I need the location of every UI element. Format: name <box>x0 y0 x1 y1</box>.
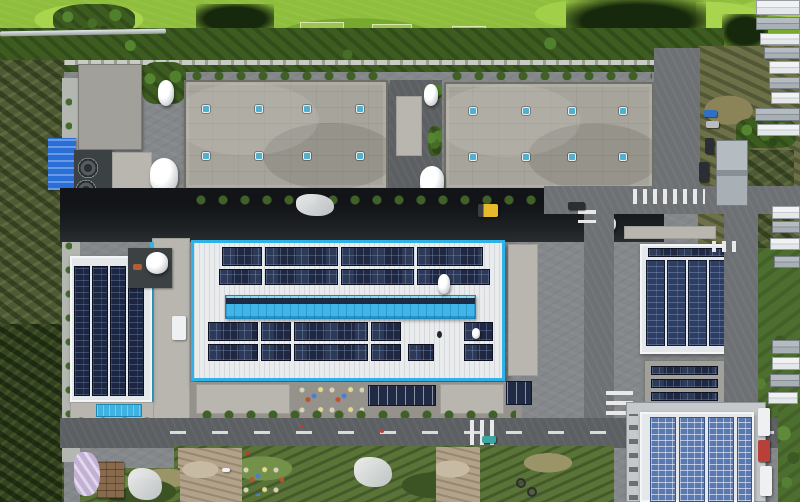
white-tarp <box>296 194 334 216</box>
solar-array-segment <box>417 247 483 266</box>
car <box>482 436 496 443</box>
skylight <box>619 107 627 115</box>
solar-array-column <box>688 260 707 346</box>
solar-array-column <box>708 417 734 502</box>
solar-array-segment <box>294 322 368 341</box>
solar-array-segment <box>219 269 262 285</box>
shed <box>757 124 800 136</box>
debris-cluster <box>240 464 284 496</box>
skylight <box>619 153 627 161</box>
excavator <box>478 204 498 217</box>
shed <box>772 221 800 233</box>
alley-pad <box>396 96 422 156</box>
car <box>706 121 719 128</box>
shed <box>755 108 800 121</box>
shed <box>764 47 800 59</box>
skylight <box>356 152 364 160</box>
white-tank <box>146 252 168 274</box>
solar-array-segment <box>208 322 258 341</box>
zebra-crossing <box>633 189 705 204</box>
white-tank <box>158 80 174 106</box>
solar-array-segment <box>341 247 414 266</box>
solar-array-column <box>667 260 686 346</box>
monitor-roof-blue <box>225 295 476 319</box>
shed <box>772 340 800 354</box>
solar-array-segment <box>417 269 490 285</box>
solar-array-column <box>92 266 108 396</box>
shed <box>769 61 800 74</box>
car <box>704 110 717 117</box>
trailer <box>758 408 770 436</box>
gray-tarp <box>128 468 162 500</box>
solar-array-column <box>74 266 90 396</box>
shed <box>771 92 800 104</box>
car <box>705 138 714 154</box>
shed <box>756 0 800 15</box>
skylight <box>469 107 477 115</box>
trailer <box>760 466 772 496</box>
skylight <box>303 105 311 113</box>
dirt-patch <box>178 448 242 502</box>
shed <box>772 206 800 219</box>
hedge-row <box>446 70 652 80</box>
solar-array-segment <box>341 269 414 285</box>
solar-array-segment <box>651 366 718 375</box>
solar-array-column <box>646 260 665 346</box>
equipment-crate <box>133 264 142 270</box>
solar-array-segment <box>265 269 338 285</box>
skylight <box>568 107 576 115</box>
solar-array-segment <box>294 344 368 361</box>
skylight <box>568 153 576 161</box>
roof-chimney <box>438 274 450 294</box>
ground-solar-array <box>368 385 436 406</box>
solar-array-segment <box>651 379 718 388</box>
solar-array-segment <box>261 344 291 361</box>
tire <box>516 478 526 488</box>
shed <box>770 238 800 250</box>
person-dot <box>380 429 384 433</box>
zebra-crossing <box>578 210 596 223</box>
cooling-fan <box>78 158 98 178</box>
solar-array-segment <box>208 344 258 361</box>
solar-array-column <box>110 266 126 396</box>
long-shed <box>716 140 748 206</box>
solar-array-column <box>650 417 676 502</box>
person-dot <box>300 425 303 428</box>
trees-southeast <box>778 404 800 502</box>
warehouse-a-roof <box>184 80 388 190</box>
white-truck <box>172 316 186 340</box>
shed <box>772 357 800 370</box>
tarp-shelter-blue <box>48 138 76 190</box>
tire <box>527 487 537 497</box>
road-northeast-vertical <box>654 48 700 198</box>
window-strip <box>629 414 638 500</box>
shed <box>768 392 798 404</box>
shed <box>769 77 800 89</box>
white-tarp <box>354 457 392 487</box>
tarp-purple <box>74 452 100 496</box>
skylight <box>469 153 477 161</box>
zebra-crossing <box>712 241 738 252</box>
hedge-row <box>186 70 386 80</box>
road-marking <box>222 468 230 472</box>
truck-red <box>758 440 770 462</box>
shed <box>756 17 800 30</box>
road-mid-vertical <box>584 212 614 420</box>
skylight <box>303 152 311 160</box>
east-lane-pad <box>508 244 538 376</box>
skylight <box>202 105 210 113</box>
worker-dot <box>437 331 442 338</box>
solar-array-column <box>679 417 705 502</box>
utility-building <box>78 64 142 150</box>
roof-vent <box>472 328 480 339</box>
solar-array-column <box>737 417 752 502</box>
solar-array-segment <box>265 247 338 266</box>
skylight <box>202 152 210 160</box>
skylight <box>522 153 530 161</box>
car <box>699 162 709 182</box>
tree-clump <box>428 126 442 156</box>
solar-array-segment <box>464 344 493 361</box>
solar-array-segment <box>371 344 401 361</box>
skylight <box>255 105 263 113</box>
aerial-photo-industrial-solar-campus <box>0 0 800 502</box>
shed <box>774 256 800 268</box>
scrub-southwest <box>0 324 62 502</box>
skylight <box>522 107 530 115</box>
shed <box>760 33 800 45</box>
covered-corridor <box>624 226 716 239</box>
skylight <box>356 105 364 113</box>
white-tank <box>424 84 438 106</box>
skylight <box>255 152 263 160</box>
shed <box>770 374 800 387</box>
person-dot <box>246 451 250 455</box>
solar-array-segment <box>261 322 291 341</box>
solar-array-segment <box>371 322 401 341</box>
ground-solar-array <box>506 381 532 405</box>
warehouse-b-roof <box>444 82 654 190</box>
solar-array-segment <box>222 247 262 266</box>
solar-array-segment <box>651 392 718 401</box>
dirt-patch <box>436 447 480 502</box>
car <box>568 202 585 210</box>
solar-array-segment <box>408 344 434 361</box>
brick-shed <box>97 461 124 498</box>
